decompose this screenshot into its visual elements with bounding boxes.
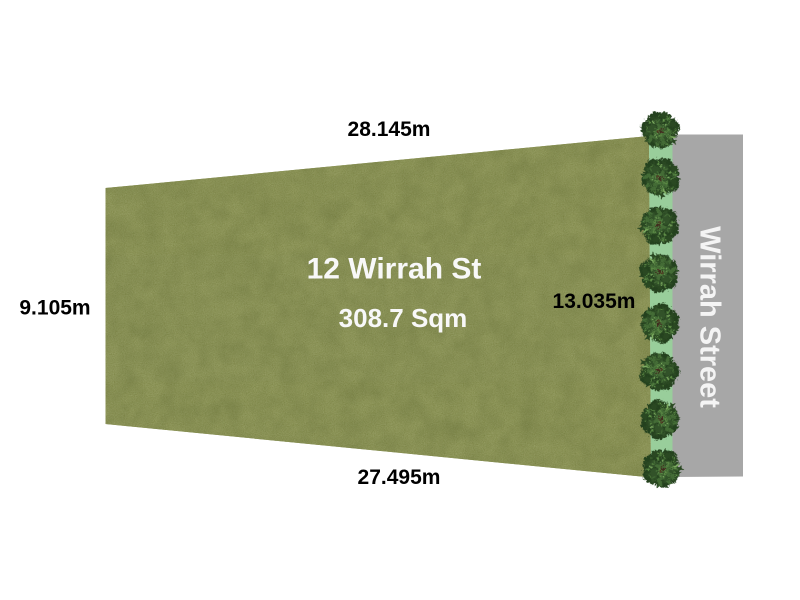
svg-text:12 Wirrah St: 12 Wirrah St bbox=[307, 253, 482, 286]
svg-text:13.035m: 13.035m bbox=[553, 290, 636, 313]
svg-text:308.7 Sqm: 308.7 Sqm bbox=[339, 303, 468, 333]
svg-text:27.495m: 27.495m bbox=[358, 466, 441, 489]
svg-text:28.145m: 28.145m bbox=[348, 118, 431, 141]
svg-text:9.105m: 9.105m bbox=[19, 297, 90, 320]
svg-text:Wirrah Street: Wirrah Street bbox=[694, 226, 726, 408]
